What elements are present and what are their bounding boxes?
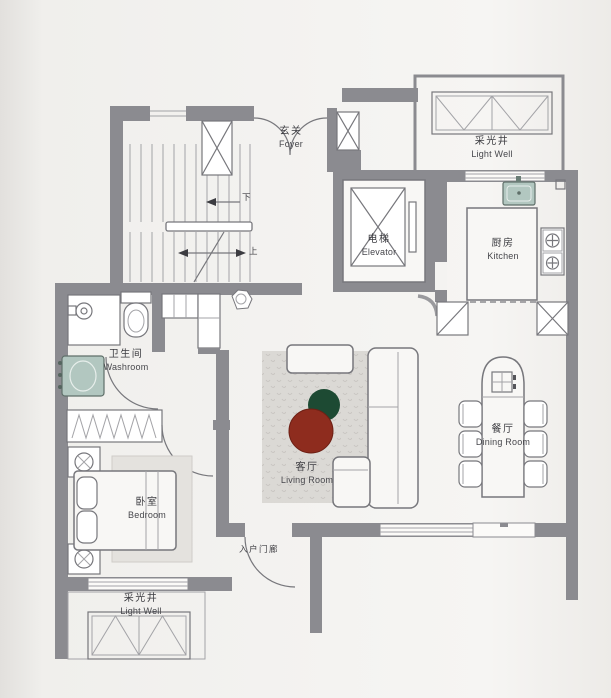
wardrobe <box>67 410 162 442</box>
stair-up-text: 上 <box>249 245 259 257</box>
shower <box>68 295 120 345</box>
living-room-label-en: Living Room <box>281 474 333 486</box>
structural-column-diagonal <box>437 302 468 335</box>
elevator-door <box>409 202 416 252</box>
toilet <box>121 292 151 337</box>
pillow <box>77 511 97 543</box>
elevator-label-en: Elevator <box>362 246 397 258</box>
room-label-living-room: 客厅 Living Room <box>281 462 333 486</box>
foyer-label-en: Foyer <box>279 138 303 150</box>
room-label-bedroom: 卧室 Bedroom <box>128 497 166 521</box>
bedroom-label-zh: 卧室 <box>128 497 166 509</box>
light-well-top-label-en: Light Well <box>471 148 512 160</box>
structural-column-x <box>337 112 359 150</box>
kitchen-label-en: Kitchen <box>487 250 518 262</box>
stair-up-arrow-left <box>178 249 188 257</box>
room-label-dining-room: 餐厅 Dining Room <box>476 424 530 448</box>
floor-plan-drawing <box>0 0 611 698</box>
room-label-light-well-bottom: 采光井 Light Well <box>120 593 161 617</box>
dining-room-label-en: Dining Room <box>476 436 530 448</box>
stair-up-arrow-right <box>236 249 246 257</box>
light-well-bottom-label-zh: 采光井 <box>120 593 161 605</box>
bedroom-label-en: Bedroom <box>128 509 166 521</box>
entrance-porch-label-zh: 入户门廊 <box>239 543 279 555</box>
room-label-light-well-top: 采光井 Light Well <box>471 136 512 160</box>
room-label-kitchen: 厨房 Kitchen <box>487 238 518 262</box>
washbasin <box>58 356 104 396</box>
kitchen-label-zh: 厨房 <box>487 238 518 250</box>
skylight-glazing <box>436 96 548 130</box>
kitchen-stove <box>541 228 564 275</box>
stair-up-label: 上 <box>249 245 259 257</box>
light-well-bottom-label-en: Light Well <box>120 605 161 617</box>
foyer-double-door <box>254 112 359 155</box>
room-label-elevator: 电梯 Elevator <box>362 234 397 258</box>
sofa-chaise <box>333 457 370 507</box>
structural-column-x <box>537 302 568 335</box>
bedroom-window <box>88 578 188 590</box>
living-window <box>380 524 473 536</box>
hall-closet <box>162 294 220 354</box>
stair-down-text: 下 <box>242 191 252 203</box>
stair-break-line <box>194 232 224 282</box>
coffee-table-red <box>289 409 333 453</box>
floor-plan: 玄关 Foyer 采光井 Light Well 电梯 Elevator 厨房 K… <box>0 0 611 698</box>
foyer-label-zh: 玄关 <box>279 126 303 138</box>
structural-column-x <box>202 121 232 175</box>
room-label-entrance-porch: 入户门廊 <box>239 543 279 555</box>
stair-down-label: 下 <box>242 191 252 203</box>
living-room-label-zh: 客厅 <box>281 462 333 474</box>
tv-bench <box>287 345 353 373</box>
kitchen-window <box>465 171 545 181</box>
elevator <box>333 170 435 292</box>
washroom-label-en: Washroom <box>104 361 149 373</box>
dining-room-label-zh: 餐厅 <box>476 424 530 436</box>
staircase <box>130 121 252 282</box>
elevator-label-zh: 电梯 <box>362 234 397 246</box>
light-well-top-label-zh: 采光井 <box>471 136 512 148</box>
skylight-glazing <box>92 616 186 655</box>
washroom-label-zh: 卫生间 <box>104 349 149 361</box>
curved-wall <box>418 296 437 316</box>
pillow <box>77 477 97 509</box>
stair-handrail <box>166 222 252 231</box>
room-label-washroom: 卫生间 Washroom <box>104 349 149 373</box>
room-label-foyer: 玄关 Foyer <box>279 126 303 150</box>
